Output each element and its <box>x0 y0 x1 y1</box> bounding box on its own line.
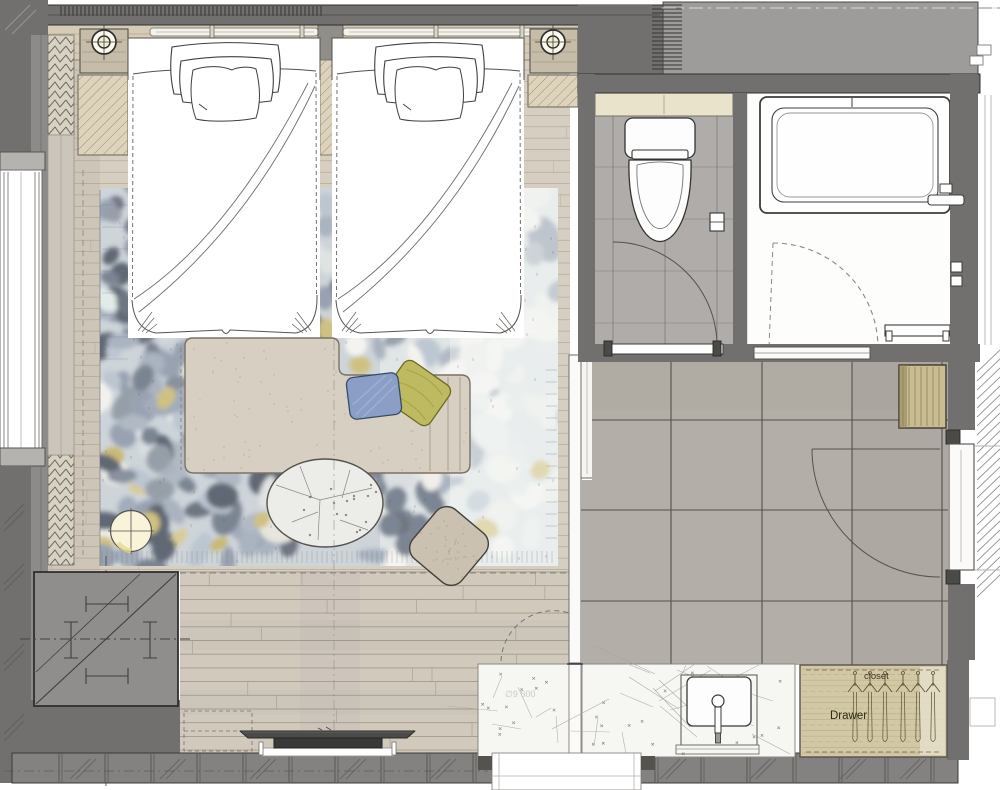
svg-text:∅9 600: ∅9 600 <box>505 689 535 699</box>
svg-text:closet: closet <box>864 671 889 682</box>
svg-text:Drawer: Drawer <box>830 710 867 722</box>
